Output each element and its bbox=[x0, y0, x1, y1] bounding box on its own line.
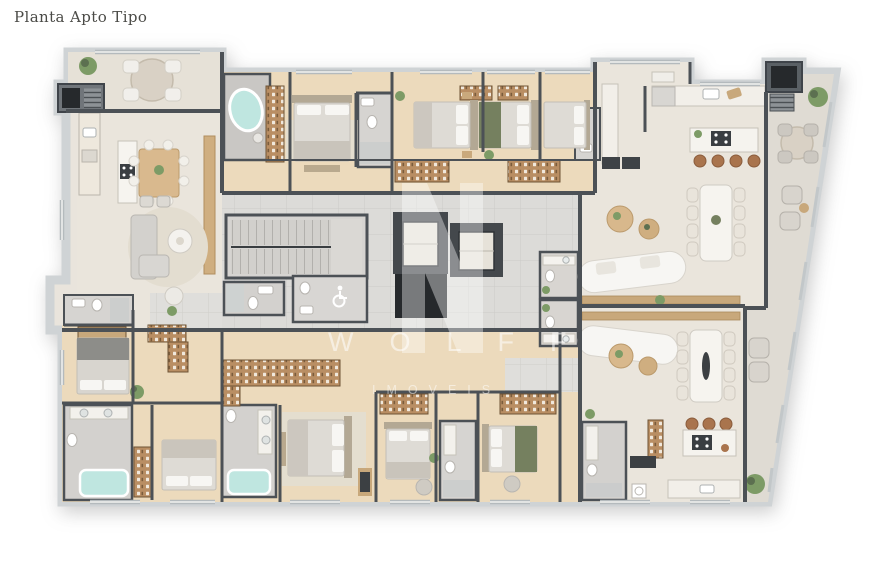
bed-suite-4 bbox=[544, 100, 590, 150]
coffee-table bbox=[607, 206, 633, 232]
corner-suite-bedroom bbox=[162, 440, 216, 490]
corner-suite-bathroom bbox=[64, 405, 132, 500]
armchair bbox=[749, 338, 769, 358]
bathroom-suite-1 bbox=[358, 93, 392, 167]
floor-plan-page: Planta Apto Tipo bbox=[0, 0, 870, 580]
shower-bathroom-bottom bbox=[440, 421, 476, 500]
master-bathroom bbox=[222, 405, 276, 497]
armchair bbox=[782, 186, 802, 204]
spa-bathroom bbox=[224, 74, 270, 160]
bedroom-left-mid bbox=[77, 338, 129, 394]
utility-box-top-left bbox=[58, 84, 104, 112]
bathroom-left-mid bbox=[64, 295, 133, 325]
tv-console bbox=[582, 312, 740, 320]
plant bbox=[808, 87, 828, 107]
plant bbox=[745, 474, 765, 494]
floor-plan-drawing bbox=[0, 0, 870, 580]
staircase bbox=[226, 215, 367, 278]
washer bbox=[632, 484, 646, 498]
master-bedroom bbox=[280, 412, 372, 496]
walk-in-closet bbox=[222, 360, 340, 386]
bathtub bbox=[80, 470, 128, 496]
pouf bbox=[165, 287, 183, 305]
bathtub bbox=[228, 470, 270, 494]
watermark-brand: WOLFF bbox=[328, 327, 603, 358]
accessible-wc bbox=[293, 276, 367, 322]
plant bbox=[79, 57, 97, 75]
floor-plan: WOLFF IMOVEIS bbox=[0, 0, 870, 580]
lavabo-left-apartment bbox=[224, 282, 284, 315]
powder-room-1 bbox=[540, 252, 578, 298]
bed-suite-2 bbox=[414, 92, 478, 158]
bathroom-right-bottom bbox=[582, 422, 626, 500]
watermark-tagline: IMOVEIS bbox=[372, 383, 501, 397]
